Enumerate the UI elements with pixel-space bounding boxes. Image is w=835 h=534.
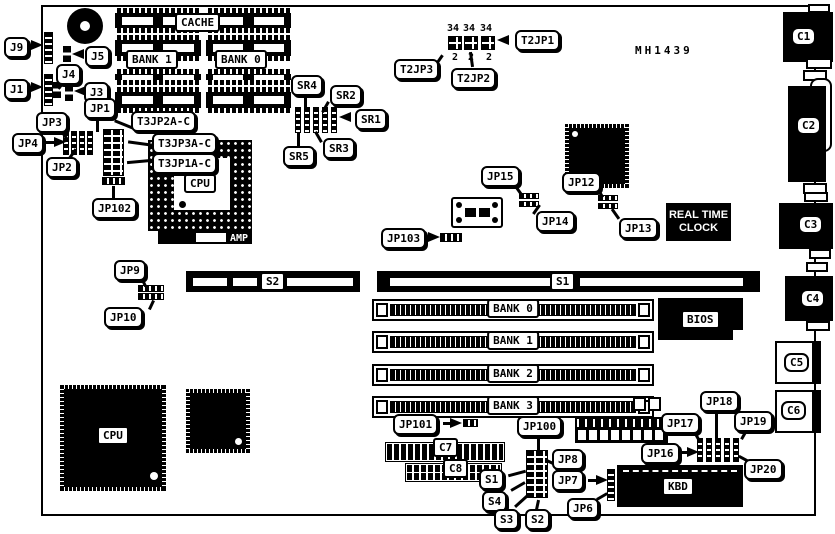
callout-jp103: JP103: [381, 228, 426, 249]
callout-jp100: JP100: [517, 416, 562, 437]
amp-bar: AMP: [158, 231, 252, 244]
callout-tail: [31, 40, 43, 50]
callout-jp4: JP4: [12, 133, 44, 154]
amp-label: AMP: [230, 233, 248, 244]
jp100-jumper-block: [526, 450, 548, 498]
cache-socket-row: [206, 87, 291, 113]
t2jp3-pin34: 34: [447, 24, 459, 34]
c2-label: C2: [796, 116, 821, 135]
cache-socket-row: [206, 69, 291, 85]
simm-bank-2: BANK 2: [372, 364, 654, 386]
c8-label: C8: [443, 459, 468, 478]
kbd-label: KBD: [662, 477, 694, 496]
callout-t3jp3a-c: T3JP3A-C: [152, 133, 217, 154]
mounting-hole: [67, 8, 103, 44]
slot-s1-label: S1: [550, 272, 575, 291]
rtc-label-line2: CLOCK: [666, 222, 731, 235]
cache-socket-row: [115, 87, 201, 113]
rtc-chip: REAL TIME CLOCK: [666, 203, 731, 241]
jp102-jumper: [102, 177, 125, 185]
callout-tail: [54, 137, 66, 147]
callout-jp8: JP8: [552, 449, 584, 470]
sr-strip: [331, 107, 337, 133]
callout-jp102: JP102: [92, 198, 137, 219]
callout-s3: S3: [494, 509, 519, 530]
part-number: MH1439: [635, 45, 693, 56]
j3-jumper: [65, 85, 73, 101]
mounting-hole-center: [80, 21, 90, 31]
t2jp3-pin2: 2: [452, 53, 458, 63]
c6-label: C6: [781, 401, 806, 420]
connector-edge-bar: [812, 390, 821, 433]
callout-t2jp1: T2JP1: [515, 30, 560, 51]
bank3-label: BANK 3: [487, 396, 539, 415]
sr-strip: [313, 107, 319, 133]
jp9-jumper: [138, 285, 164, 292]
c3-label: C3: [798, 215, 823, 234]
cache-socket-row: [115, 69, 201, 85]
pin1-marker: [179, 201, 186, 208]
callout-jp9: JP9: [114, 260, 146, 281]
simm-bank-0: BANK 0: [372, 299, 654, 321]
jp-block-strip: [79, 131, 85, 155]
connector-edge-bar: [812, 341, 821, 384]
t2jp1-jumper: [481, 36, 495, 50]
callout-jp16: JP16: [641, 443, 680, 464]
callout-j4: J4: [56, 64, 81, 85]
slot-segment: [193, 278, 227, 286]
callout-jp20: JP20: [744, 459, 783, 480]
callout-jp12: JP12: [562, 172, 601, 193]
edge-tab: [806, 58, 832, 69]
osc-hole: [456, 202, 462, 208]
jp13-jumper: [598, 203, 618, 209]
cache-bank1-label: BANK 1: [126, 50, 178, 69]
kbd-chip-stripe: [623, 470, 737, 472]
simm-clip: [376, 303, 388, 317]
callout-jp6: JP6: [567, 498, 599, 519]
bios-notch: [733, 330, 743, 340]
osc-pad: [479, 208, 490, 217]
callout-t2jp3: T2JP3: [394, 59, 439, 80]
simm-clip: [376, 400, 388, 414]
callout-jp101: JP101: [393, 414, 438, 435]
simm-clip: [638, 335, 650, 349]
callout-tail: [715, 409, 718, 438]
simm-clip: [376, 335, 388, 349]
c5-label: C5: [784, 353, 809, 372]
callout-tail: [72, 49, 84, 59]
t2jp2-jumper: [464, 36, 478, 50]
cache-label: CACHE: [175, 13, 220, 32]
c1-label: C1: [791, 27, 816, 46]
jp16-20-strip: [733, 438, 739, 462]
callout-tail: [31, 82, 43, 92]
edge-tab: [806, 321, 830, 331]
t2jp3-jumper: [448, 36, 462, 50]
jp15-jumper: [519, 193, 539, 199]
callout-s1: S1: [479, 469, 504, 490]
jp6-jp7-jumper: [607, 469, 615, 501]
callout-t3jp2a-c: T3JP2A-C: [131, 111, 196, 132]
callout-jp15: JP15: [481, 166, 520, 187]
jp16-20-strip: [724, 438, 730, 462]
pin1-marker: [150, 472, 158, 480]
slot-segment: [233, 278, 257, 286]
bios-label: BIOS: [681, 310, 720, 329]
callout-tail: [339, 112, 351, 122]
t3jp-jumper-block: [103, 129, 124, 176]
t2jp1-pin2: 2: [486, 53, 492, 63]
bank0-label: BANK 0: [487, 299, 539, 318]
callout-tail: [450, 418, 462, 428]
callout-tail: [687, 447, 699, 457]
coprocessor-chip: [186, 389, 250, 453]
pin1-marker: [235, 438, 242, 445]
jp103-jumper: [440, 233, 462, 242]
edge-tab: [806, 262, 828, 272]
j5-jumper: [63, 46, 71, 62]
callout-tail: [297, 133, 300, 147]
osc-pad: [465, 208, 476, 217]
j1-header: [44, 74, 53, 106]
simm-bank-1: BANK 1: [372, 331, 654, 353]
jp10-jumper: [138, 293, 164, 300]
callout-sr2: SR2: [330, 85, 362, 106]
cache-bank0-label: BANK 0: [215, 50, 267, 69]
t2jp1-pin34: 34: [480, 24, 492, 34]
callout-tail: [497, 35, 509, 45]
callout-tail: [596, 475, 608, 485]
callout-j9: J9: [4, 37, 29, 58]
cpu-chip-label: CPU: [97, 426, 129, 445]
jp101-jumper: [463, 419, 478, 427]
callout-jp18: JP18: [700, 391, 739, 412]
edge-tab: [804, 192, 828, 202]
jp16-20-strip: [706, 438, 712, 462]
callout-t3jp1a-c: T3JP1A-C: [152, 153, 217, 174]
callout-jp19: JP19: [734, 411, 773, 432]
edge-tab: [809, 249, 831, 259]
jp-block-strip: [87, 131, 93, 155]
cpu-socket-label: CPU: [184, 174, 216, 193]
callout-sr3: SR3: [323, 138, 355, 159]
callout-jp3: JP3: [36, 112, 68, 133]
callout-jp14: JP14: [536, 211, 575, 232]
osc-hole: [492, 217, 498, 223]
c4-label: C4: [800, 289, 825, 308]
callout-sr5: SR5: [283, 146, 315, 167]
callout-j1: J1: [4, 79, 29, 100]
pin1-marker: [572, 131, 578, 137]
callout-t2jp2: T2JP2: [451, 68, 496, 89]
t2jp2-pin34: 34: [463, 24, 475, 34]
bank2-label: BANK 2: [487, 364, 539, 383]
callout-j5: J5: [85, 46, 110, 67]
jp16-20-strip: [715, 438, 721, 462]
callout-jp13: JP13: [619, 218, 658, 239]
bank1-label: BANK 1: [487, 331, 539, 350]
sr-strip: [295, 107, 301, 133]
osc-hole: [456, 217, 462, 223]
oscillator: [451, 197, 503, 228]
callout-jp1: JP1: [84, 98, 116, 119]
j9-header: [44, 32, 53, 64]
callout-s2: S2: [525, 509, 550, 530]
rtc-label-line1: REAL TIME: [666, 209, 731, 222]
slot-segment: [390, 278, 550, 286]
callout-jp2: JP2: [46, 157, 78, 178]
power-connector: [575, 417, 668, 443]
callout-sr1: SR1: [355, 109, 387, 130]
osc-hole: [492, 202, 498, 208]
simm-clip: [376, 368, 388, 382]
simm-clip: [638, 368, 650, 382]
c7-label: C7: [433, 438, 458, 457]
edge-tab: [633, 397, 646, 411]
amp-slot: [196, 233, 226, 242]
callout-jp7: JP7: [552, 470, 584, 491]
simm-clip: [638, 303, 650, 317]
callout-sr4: SR4: [291, 75, 323, 96]
slot-segment: [580, 278, 743, 286]
sr-strip: [304, 107, 310, 133]
motherboard-diagram: CACHE BANK 1 BANK 0 J9 J5 J4 J1 J3 JP1 J…: [0, 0, 835, 534]
callout-tail: [428, 232, 440, 242]
slot-s2-label: S2: [260, 272, 285, 291]
slot-segment: [287, 278, 353, 286]
callout-jp10: JP10: [104, 307, 143, 328]
edge-tab: [648, 397, 661, 411]
callout-jp17: JP17: [661, 413, 700, 434]
